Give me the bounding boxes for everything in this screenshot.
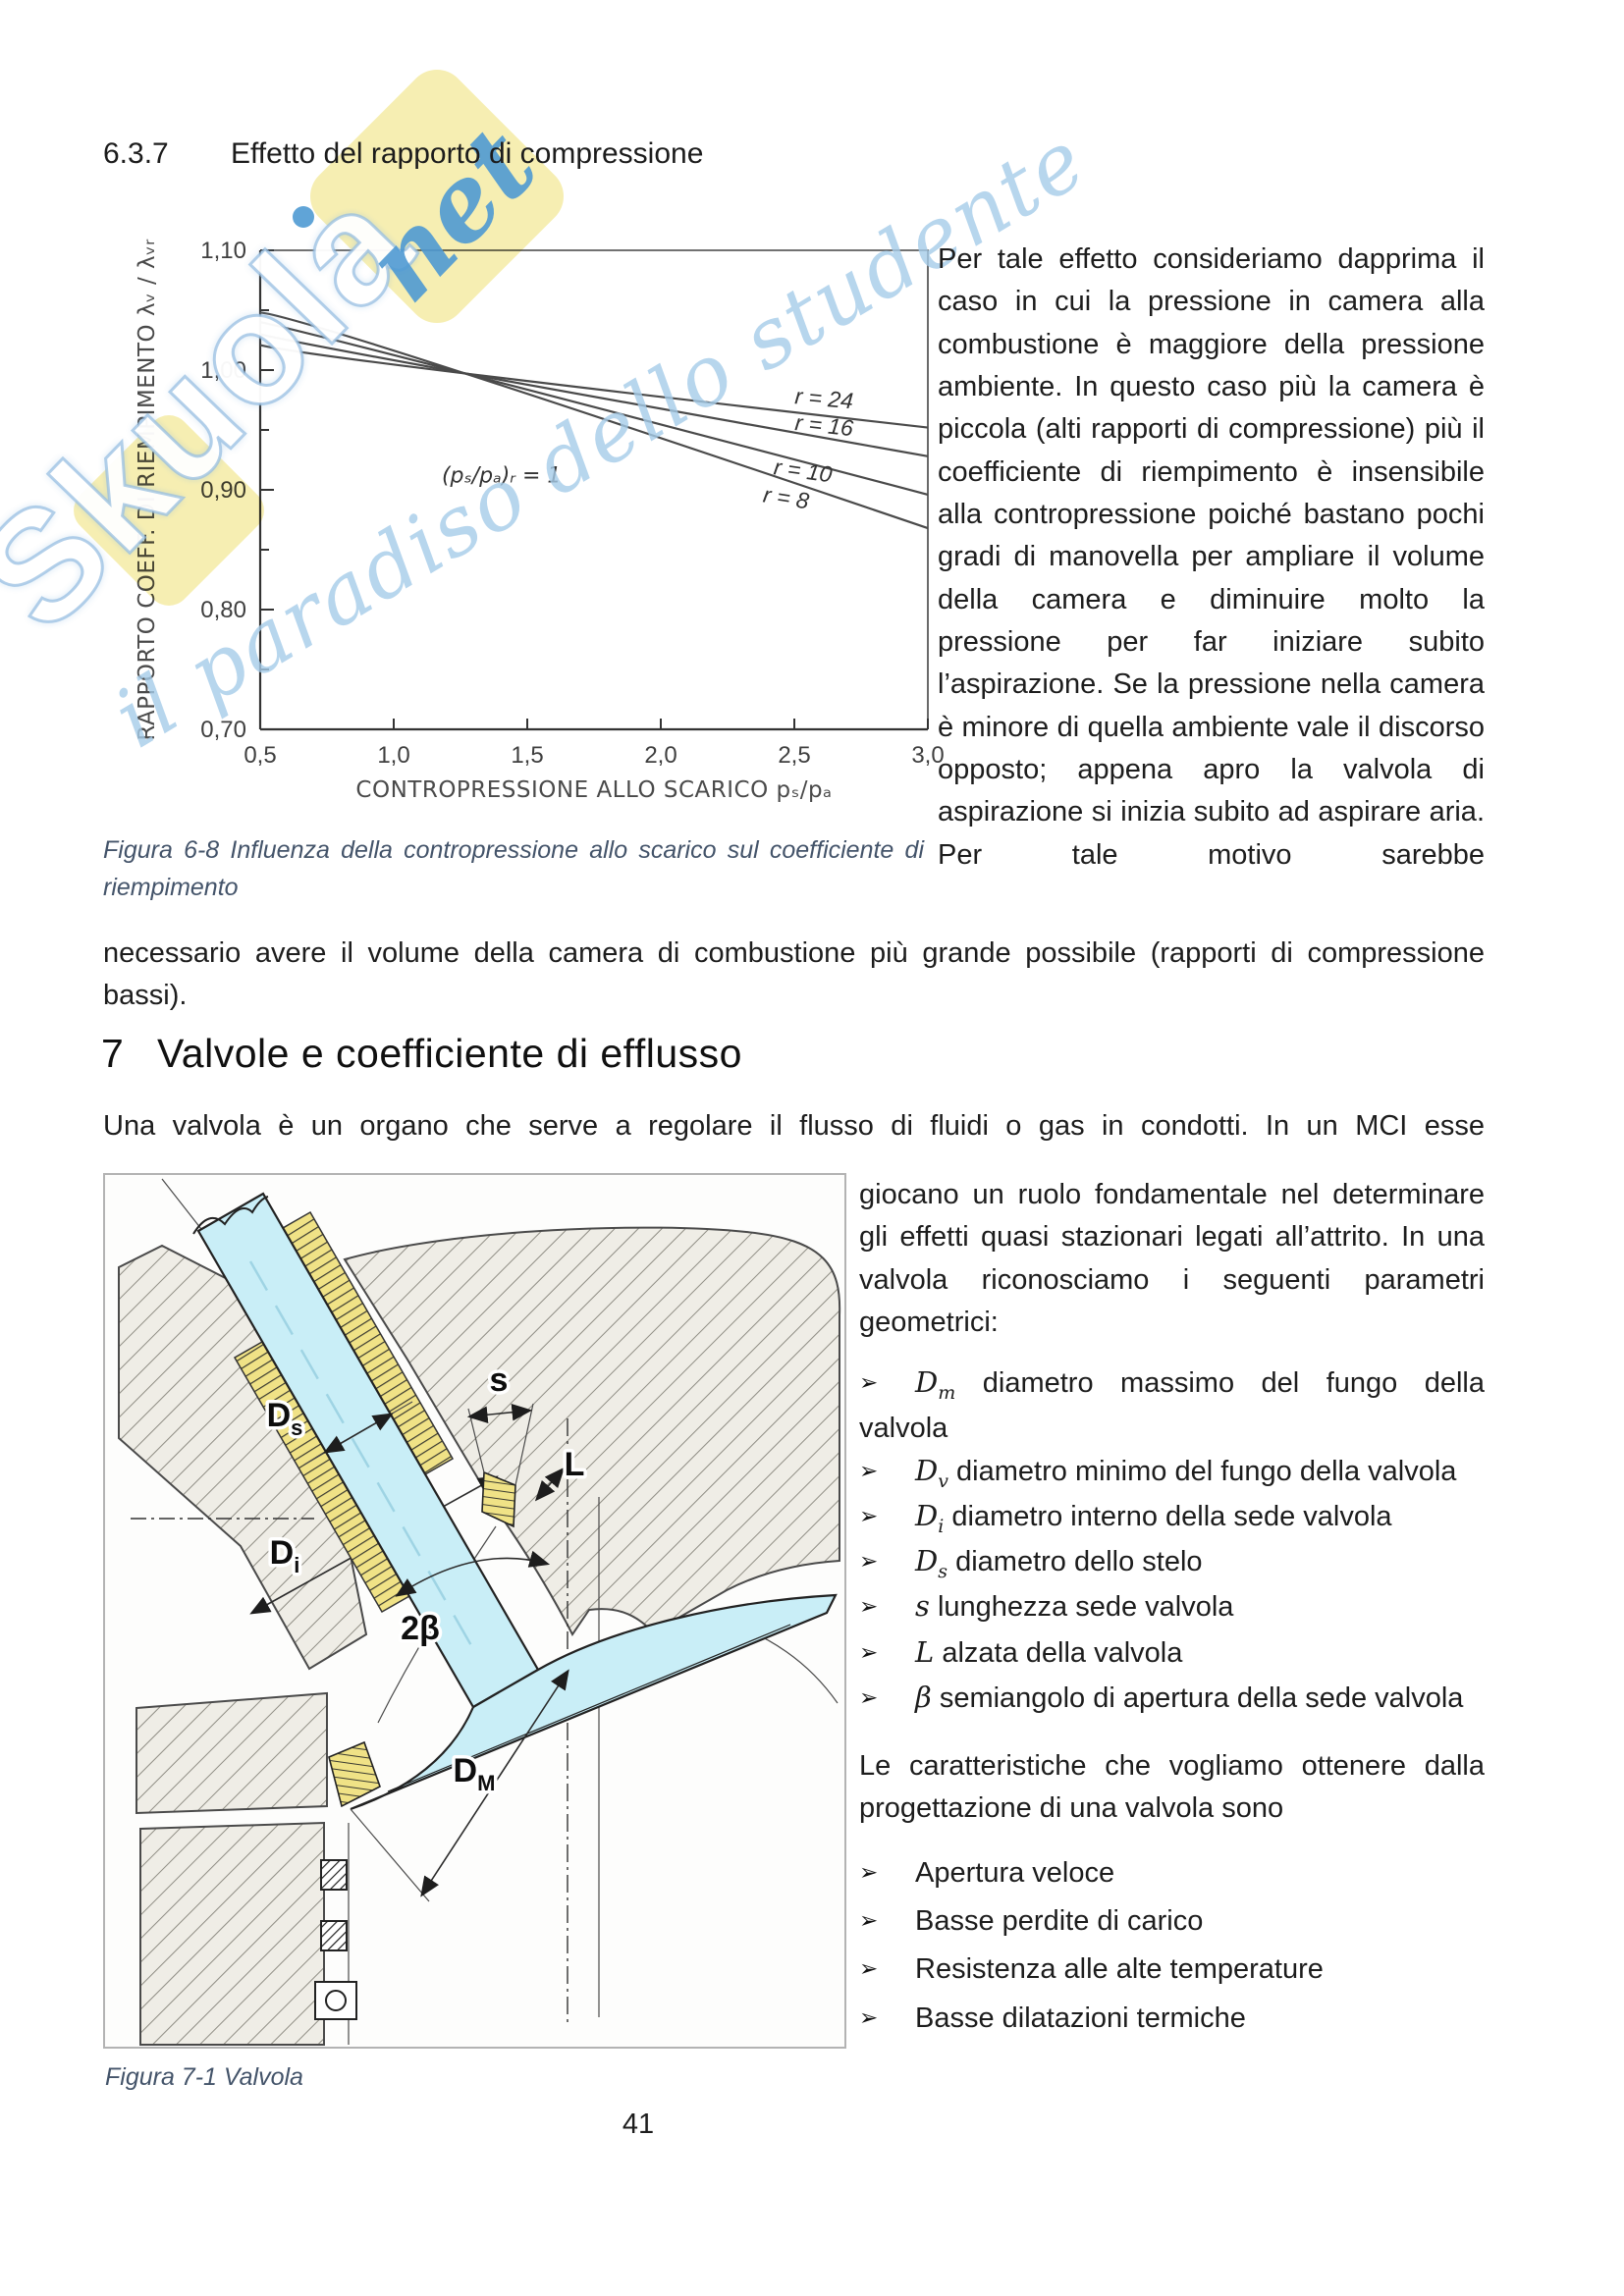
svg-text:2,5: 2,5 bbox=[778, 742, 810, 769]
l-label: L bbox=[565, 1446, 585, 1483]
parameter-item: ➢β semiangolo di apertura della sede val… bbox=[859, 1677, 1485, 1722]
svg-text:r = 10: r = 10 bbox=[773, 454, 835, 487]
ring-detail bbox=[326, 1991, 346, 2010]
characteristic-item: ➢Basse perdite di carico bbox=[859, 1900, 1485, 1943]
document-page: 0,700,800,901,001,100,51,01,52,02,53,0r … bbox=[0, 0, 1624, 2296]
svg-text:2,0: 2,0 bbox=[644, 742, 677, 769]
parameter-list: ➢Dm diametro massimo del fungo della val… bbox=[859, 1362, 1485, 1722]
s-label: s bbox=[490, 1362, 509, 1399]
watermark-dot bbox=[293, 206, 314, 228]
bullet-icon: ➢ bbox=[859, 2001, 915, 2034]
parameter-item: ➢Dm diametro massimo del fungo della val… bbox=[859, 1362, 1485, 1450]
head-lower-block bbox=[136, 1693, 327, 1813]
section-heading-637: 6.3.7Effetto del rapporto di compression… bbox=[103, 137, 703, 171]
two-beta-label: 2β bbox=[401, 1610, 440, 1647]
bullet-icon: ➢ bbox=[859, 1589, 915, 1623]
svg-text:r = 24: r = 24 bbox=[794, 383, 855, 413]
svg-text:1,5: 1,5 bbox=[511, 742, 543, 769]
characteristics-list: ➢Apertura veloce➢Basse perdite di carico… bbox=[859, 1852, 1485, 2040]
piston-ring bbox=[321, 1921, 347, 1950]
section-7-right-column: giocano un ruolo fondamentale nel determ… bbox=[859, 1174, 1485, 2046]
section-number: 7 bbox=[101, 1031, 157, 1077]
characteristics-intro: Le caratteristiche che vogliamo ottenere… bbox=[859, 1745, 1485, 1831]
parameter-item: ➢s lunghezza sede valvola bbox=[859, 1585, 1485, 1630]
page-number: 41 bbox=[550, 2109, 727, 2141]
characteristic-item: ➢Resistenza alle alte temperature bbox=[859, 1949, 1485, 1991]
section-title: Effetto del rapporto di compressione bbox=[231, 137, 703, 170]
bullet-icon: ➢ bbox=[859, 1903, 915, 1937]
svg-text:r = 16: r = 16 bbox=[793, 409, 854, 441]
bullet-icon: ➢ bbox=[859, 1855, 915, 1889]
characteristic-item: ➢Basse dilatazioni termiche bbox=[859, 1998, 1485, 2040]
figure-6-8-caption: Figura 6-8 Influenza della contropressio… bbox=[103, 832, 924, 906]
figure-7-1-caption: Figura 7-1 Valvola bbox=[105, 2059, 792, 2097]
figure-7-1-valve-drawing: Ds Di 2β DM s L bbox=[103, 1173, 846, 2049]
bullet-icon: ➢ bbox=[859, 1454, 915, 1487]
bullet-icon: ➢ bbox=[859, 1544, 915, 1577]
section-number: 6.3.7 bbox=[103, 137, 231, 171]
svg-text:1,0: 1,0 bbox=[377, 742, 409, 769]
svg-text:0,5: 0,5 bbox=[244, 742, 276, 769]
bullet-icon: ➢ bbox=[859, 1681, 915, 1714]
cylinder-block bbox=[140, 1823, 324, 2045]
svg-text:CONTROPRESSIONE ALLO SCARICO: CONTROPRESSIONE ALLO SCARICO pₛ/pₐ bbox=[355, 777, 832, 803]
parameter-item: ➢Di diametro interno della sede valvola bbox=[859, 1495, 1485, 1540]
body-paragraph-right: giocano un ruolo fondamentale nel determ… bbox=[859, 1174, 1485, 1344]
characteristic-item: ➢Apertura veloce bbox=[859, 1852, 1485, 1895]
bullet-icon: ➢ bbox=[859, 1499, 915, 1532]
parameter-item: ➢Dv diametro minimo del fungo della valv… bbox=[859, 1450, 1485, 1495]
parameter-item: ➢Ds diametro dello stelo bbox=[859, 1540, 1485, 1585]
section-7-intro: Una valvola è un organo che serve a rego… bbox=[103, 1105, 1485, 1148]
section-heading-7: 7Valvole e coefficiente di efflusso bbox=[101, 1031, 742, 1077]
bullet-icon: ➢ bbox=[859, 1951, 915, 1985]
body-paragraph-right: Per tale effetto consideriamo dapprima i… bbox=[938, 239, 1485, 877]
bullet-icon: ➢ bbox=[859, 1635, 915, 1669]
bullet-icon: ➢ bbox=[859, 1365, 915, 1399]
parameter-item: ➢L alzata della valvola bbox=[859, 1631, 1485, 1677]
body-paragraph-continuation: necessario avere il volume della camera … bbox=[103, 933, 1485, 1018]
piston-ring bbox=[321, 1860, 347, 1890]
section-title: Valvole e coefficiente di efflusso bbox=[157, 1031, 742, 1076]
